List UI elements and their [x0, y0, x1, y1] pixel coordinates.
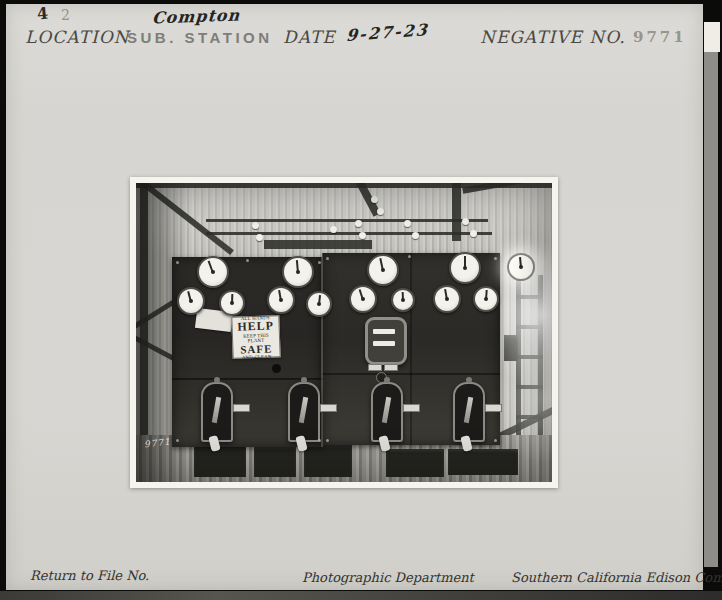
meter-hub — [317, 302, 321, 306]
location-label: LOCATION — [25, 27, 129, 47]
meter-hub — [401, 298, 405, 302]
switch-unit — [201, 382, 233, 442]
meter-hub — [381, 268, 385, 272]
pencil-mark-right: 2 — [61, 7, 70, 23]
panel-screw — [326, 257, 329, 260]
panel-screw — [408, 255, 411, 258]
panel-meter — [197, 256, 229, 288]
panel-meter — [391, 288, 415, 312]
insulator — [377, 208, 384, 215]
panel-screw — [318, 261, 321, 264]
panel-meter — [449, 252, 481, 284]
sign-line-1: ALL HANDS — [237, 314, 274, 320]
sign-line-4: SAFE — [233, 343, 279, 355]
panel-meter — [507, 253, 535, 281]
negative-number-value: 9771 — [633, 28, 687, 46]
panel-hole — [272, 364, 281, 373]
label-plate — [233, 404, 250, 412]
sign-line-3: KEEP THIS PLANT — [237, 332, 274, 343]
meter-hub — [230, 301, 234, 305]
label-plate — [485, 404, 502, 412]
panel-meter — [219, 290, 245, 316]
panel-meter — [349, 285, 377, 313]
insulator — [462, 218, 469, 225]
switch-unit — [288, 382, 320, 442]
meter-hub — [463, 266, 467, 270]
photo-scene: ALL HANDS HELP KEEP THIS PLANT SAFE AND … — [136, 183, 552, 482]
panel-meter — [282, 256, 314, 288]
meter-hub — [279, 298, 283, 302]
meter-hub — [445, 297, 449, 301]
return-to-file-label: Return to File No. — [30, 568, 149, 583]
panel-meter — [433, 285, 461, 313]
sign-line-2: HELP — [232, 320, 278, 333]
switch-handle — [299, 397, 308, 423]
label-plate — [403, 404, 420, 412]
equipment-box — [448, 449, 518, 475]
panel-screw — [494, 257, 497, 260]
insulator — [330, 226, 337, 233]
sign-line-5: AND CLEAN — [238, 353, 275, 359]
negative-number-label: NEGATIVE NO. — [480, 27, 626, 47]
panel-screw — [176, 439, 179, 442]
meter-hub — [519, 265, 523, 269]
insulator — [412, 232, 419, 239]
steel-beam — [206, 232, 492, 235]
panel-screw — [176, 261, 179, 264]
insulator — [252, 222, 259, 229]
archive-card: 4 2 Compton LOCATION SUB. STATION DATE 9… — [6, 4, 703, 590]
equipment-box — [254, 447, 296, 477]
date-handwritten: 9-27-23 — [345, 20, 429, 45]
meter-hub — [484, 297, 488, 301]
company-label: Southern California Edison Company — [511, 570, 722, 585]
equipment-box — [386, 449, 444, 477]
meter-hub — [361, 297, 365, 301]
switch-handle — [212, 397, 221, 423]
switch-unit — [453, 382, 485, 442]
location-handwritten: Compton — [151, 5, 240, 27]
meter-hub — [296, 270, 300, 274]
panel-seam — [410, 253, 412, 445]
label-plate — [384, 364, 398, 371]
photograph: ALL HANDS HELP KEEP THIS PLANT SAFE AND … — [130, 177, 558, 488]
safety-sign: ALL HANDS HELP KEEP THIS PLANT SAFE AND … — [231, 315, 280, 359]
meter-hub — [189, 299, 193, 303]
panel-seam — [321, 253, 323, 447]
scanned-photo-card: 4 2 Compton LOCATION SUB. STATION DATE 9… — [0, 0, 722, 600]
steel-beam — [206, 219, 488, 222]
scan-edge-strip — [704, 52, 718, 567]
insulator — [355, 220, 362, 227]
switch-handle — [382, 397, 391, 423]
panel-meter — [267, 286, 295, 314]
insulator — [256, 234, 263, 241]
insulator — [470, 230, 477, 237]
panel-meter — [177, 287, 205, 315]
pencil-mark-left: 4 — [36, 4, 49, 24]
steel-beam — [264, 240, 372, 249]
equipment-box — [304, 445, 352, 477]
label-plate — [320, 404, 337, 412]
panel-meter — [367, 254, 399, 286]
panel-meter — [473, 286, 499, 312]
meter-hub — [211, 270, 215, 274]
label-plate — [368, 364, 382, 371]
date-label: DATE — [283, 27, 336, 47]
meter-register-window — [373, 341, 395, 346]
location-stamped-value: SUB. STATION — [127, 29, 273, 46]
panel-screw — [318, 439, 321, 442]
insulator — [359, 232, 366, 239]
switch-unit — [371, 382, 403, 442]
panel-screw — [494, 439, 497, 442]
insulator — [404, 220, 411, 227]
panel-screw — [246, 259, 249, 262]
insulator — [371, 196, 378, 203]
scan-bottom-edge — [0, 591, 722, 600]
panel-screw — [326, 439, 329, 442]
panel-meter — [306, 291, 332, 317]
switch-handle — [464, 397, 473, 423]
department-label: Photographic Department — [302, 570, 474, 585]
steel-beam — [452, 183, 461, 241]
scan-edge-tab — [704, 22, 720, 52]
meter-register-window — [373, 329, 395, 334]
watt-hour-meter — [365, 317, 407, 365]
